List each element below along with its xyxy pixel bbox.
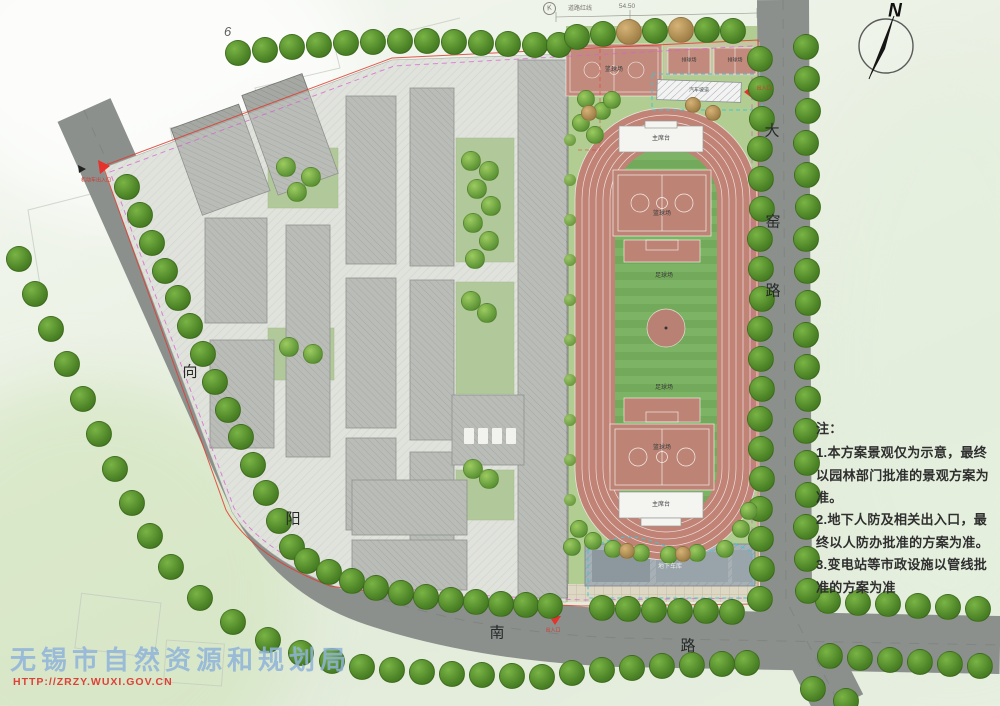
redline-label: 道路红线: [568, 6, 592, 12]
basketball-court-upper: [613, 170, 711, 236]
road-label-east-1: 大: [764, 124, 779, 139]
road-label-south-1: 南: [489, 626, 504, 641]
note-item-1: 1.本方案景观仅为示意，最终以园林部门批准的景观方案为准。: [816, 442, 998, 509]
goal-box-lower: [624, 398, 700, 422]
field-label-1: 足球场: [655, 273, 673, 279]
entrance-south-label: 出入口: [545, 629, 560, 634]
road-label-west-2: 阳: [285, 512, 300, 527]
road-label-east-3: 路: [765, 284, 780, 299]
road-label-east-2: 窑: [765, 215, 780, 230]
north-arrow: [859, 16, 913, 79]
campus-wash: [103, 54, 566, 602]
dimension-value: 54.50: [619, 4, 635, 11]
entrance-east-label: 出入口: [756, 87, 771, 92]
stand-bottom-label: 主席台: [652, 502, 670, 508]
agency-watermark: 无锡市自然资源和规划局: [10, 640, 351, 677]
road-label-west-1: 向: [182, 365, 197, 380]
note-item-3: 3.变电站等市政设施以管线批准的方案为准: [816, 554, 998, 599]
volleyball-2-label: 排球场: [727, 59, 742, 64]
basketball-top-label: 篮球场: [605, 67, 623, 73]
site-plan-drawing: [0, 0, 1000, 706]
stand-top-label: 主席台: [652, 136, 670, 142]
notes-heading: 注：: [816, 418, 998, 440]
garage-label: 地下车库: [658, 564, 682, 570]
paved-walk: [568, 584, 757, 602]
north-courts: [566, 44, 756, 102]
notes-block: 注： 1.本方案景观仅为示意，最终以园林部门批准的景观方案为准。 2.地下人防及…: [816, 418, 998, 599]
agency-url-watermark: HTTP://ZRZY.WUXI.GOV.CN: [13, 676, 173, 688]
entrance-west-label: 机动车出入口: [81, 179, 111, 184]
north-label: N: [888, 2, 902, 21]
volleyball-1-label: 排球场: [681, 59, 696, 64]
field-label-2: 足球场: [655, 385, 673, 391]
note-item-2: 2.地下人防及相关出入口，最终以人防办批准的方案为准。: [816, 509, 998, 554]
basketball-upper-label: 篮球场: [653, 211, 671, 217]
goal-box-upper: [624, 240, 700, 262]
basketball-lower-label: 篮球场: [653, 445, 671, 451]
basketball-court-lower: [610, 424, 714, 490]
car-ramp-label: 汽车坡道: [689, 89, 709, 94]
plot-number: 6: [224, 24, 231, 39]
road-label-south-2: 路: [680, 639, 695, 654]
site-plan-image: 向 阳 南 路 大 窑 路 主席台 篮球场 足球场 足球场 篮球场 主席台 篮球…: [0, 0, 1000, 706]
